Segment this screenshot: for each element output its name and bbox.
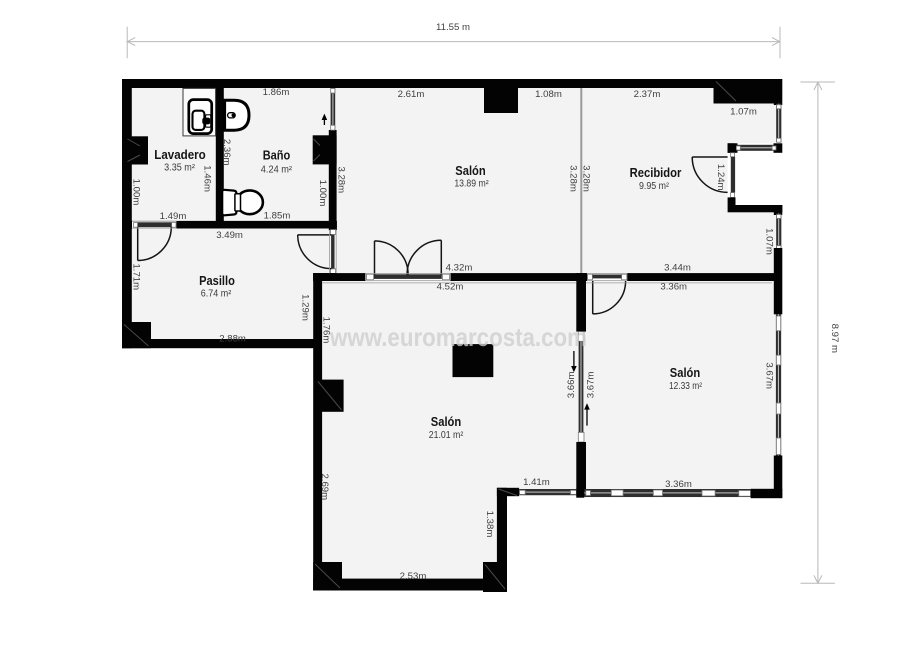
- svg-text:4.52m: 4.52m: [437, 282, 464, 293]
- svg-text:1.46m: 1.46m: [202, 165, 213, 192]
- svg-text:11.55 m: 11.55 m: [436, 22, 470, 33]
- svg-text:1.07m: 1.07m: [730, 107, 757, 118]
- svg-text:1.00m: 1.00m: [131, 179, 142, 206]
- svg-text:3.36m: 3.36m: [665, 479, 692, 490]
- svg-text:1.38m: 1.38m: [484, 511, 495, 538]
- svg-text:2.61m: 2.61m: [398, 89, 425, 100]
- svg-text:21.01 m²: 21.01 m²: [429, 430, 464, 441]
- svg-text:3.35 m²: 3.35 m²: [164, 162, 195, 173]
- svg-text:2.53m: 2.53m: [400, 571, 427, 582]
- svg-text:4.24 m²: 4.24 m²: [261, 164, 293, 175]
- svg-text:3.67m: 3.67m: [586, 372, 597, 399]
- svg-text:3.28m: 3.28m: [335, 166, 346, 193]
- svg-text:Salón: Salón: [455, 163, 485, 178]
- svg-text:Salón: Salón: [670, 365, 700, 380]
- svg-text:1.00m: 1.00m: [317, 180, 328, 207]
- svg-text:Lavadero: Lavadero: [154, 147, 206, 162]
- svg-text:Pasillo: Pasillo: [199, 273, 235, 288]
- svg-text:2.37m: 2.37m: [634, 89, 661, 100]
- svg-text:3.49m: 3.49m: [216, 230, 243, 241]
- svg-text:3.67m: 3.67m: [763, 362, 774, 389]
- svg-text:4.32m: 4.32m: [446, 262, 473, 273]
- svg-text:3.66m: 3.66m: [566, 372, 577, 399]
- svg-text:Salón: Salón: [431, 414, 461, 429]
- svg-text:www.euromarcosta.com: www.euromarcosta.com: [329, 322, 587, 352]
- svg-text:1.49m: 1.49m: [160, 211, 187, 222]
- svg-text:Baño: Baño: [263, 148, 291, 163]
- svg-text:Recibidor: Recibidor: [630, 165, 682, 180]
- svg-text:3.44m: 3.44m: [664, 262, 691, 273]
- svg-text:1.29m: 1.29m: [300, 294, 311, 321]
- svg-text:1.85m: 1.85m: [264, 211, 291, 222]
- svg-text:8.97 m: 8.97 m: [829, 324, 840, 353]
- svg-text:9.95 m²: 9.95 m²: [639, 181, 670, 192]
- svg-text:1.71m: 1.71m: [130, 263, 141, 290]
- svg-text:6.74 m²: 6.74 m²: [201, 288, 232, 299]
- svg-text:12.33 m²: 12.33 m²: [669, 381, 703, 392]
- svg-text:2.88m: 2.88m: [219, 334, 246, 345]
- svg-text:1.86m: 1.86m: [263, 87, 290, 98]
- svg-text:3.28m: 3.28m: [581, 165, 592, 192]
- svg-text:1.07m: 1.07m: [763, 228, 774, 255]
- svg-text:2.69m: 2.69m: [319, 473, 330, 500]
- svg-text:3.28m: 3.28m: [568, 165, 579, 192]
- svg-text:1.24m: 1.24m: [715, 164, 726, 191]
- svg-text:3.36m: 3.36m: [660, 282, 687, 293]
- svg-text:1.41m: 1.41m: [523, 477, 550, 488]
- svg-text:1.08m: 1.08m: [535, 89, 562, 100]
- svg-text:13.89 m²: 13.89 m²: [454, 178, 489, 189]
- svg-text:2.36m: 2.36m: [221, 139, 232, 166]
